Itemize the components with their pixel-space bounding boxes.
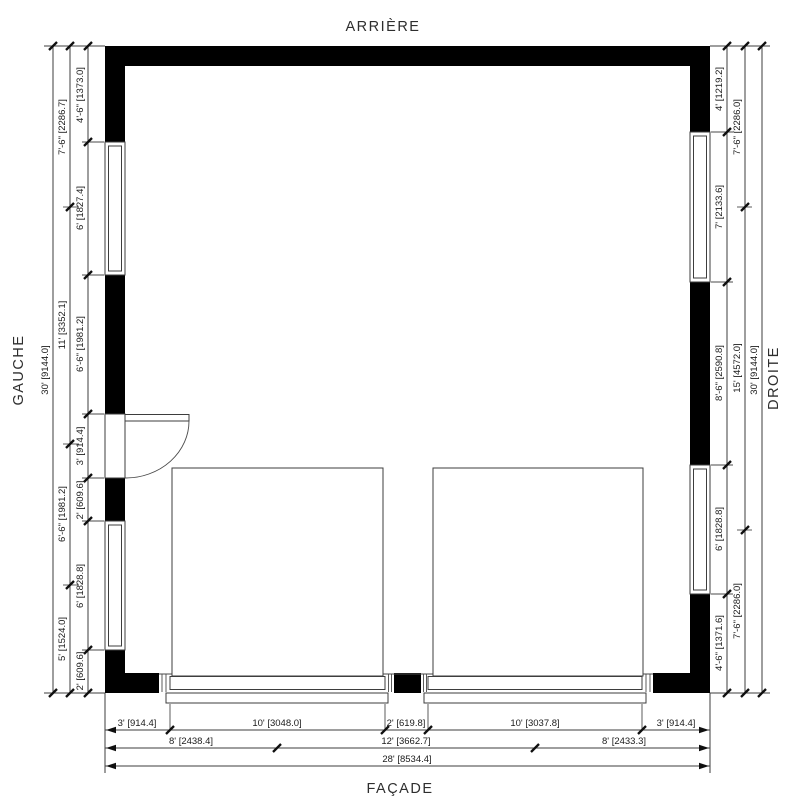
dim-label: 10' [3037.8] [510, 718, 559, 729]
dim-label: 4'-6" [1373.0] [75, 67, 86, 123]
garage-door-right-panel [428, 677, 642, 690]
dim-label: 15' [4572.0] [732, 343, 743, 392]
dim-label: 10' [3048.0] [252, 718, 301, 729]
dim-label-right-overall: 30' [9144.0] [749, 345, 760, 394]
dim-label-left-overall: 30' [9144.0] [40, 345, 51, 394]
door-opening [105, 414, 125, 478]
garage-door-right-sill [424, 693, 646, 703]
window-frame [109, 146, 122, 271]
garage-bay-right [433, 468, 643, 676]
dim-label: 8' [2438.4] [169, 736, 213, 747]
dim-labels-right-middle: 7'-6" [2286.0] 15' [4572.0] 7'-6" [2286.… [732, 99, 743, 639]
dim-label: 7' [2133.6] [714, 185, 725, 229]
dim-label: 11' [3352.1] [57, 301, 68, 350]
dim-label: 8' [2433.3] [602, 736, 646, 747]
garage-front-openings [159, 673, 653, 703]
floor-plan-canvas: 4'-6" [1373.0] 6' [1827.4] 6'-6" [1981.2… [0, 0, 800, 800]
dim-labels-left-inner: 4'-6" [1373.0] 6' [1827.4] 6'-6" [1981.2… [75, 67, 86, 690]
dim-label: 4'-6" [1371.6] [714, 615, 725, 671]
dim-labels-right-inner: 4' [1219.2] 7' [2133.6] 8'-6" [2590.8] 6… [714, 67, 725, 671]
dim-labels-left-middle: 7'-6" [2286.7] 11' [3352.1] 6'-6" [1981.… [57, 99, 68, 661]
window-frame [694, 469, 707, 590]
dim-label: 2' [619.8] [387, 718, 426, 729]
dim-label: 2' [609.6] [75, 481, 86, 520]
dim-label: 6' [1828.8] [75, 564, 86, 608]
dim-label: 3' [914.4] [75, 427, 86, 466]
dim-label: 6'-6" [1981.2] [57, 486, 68, 542]
garage-bay-left [172, 468, 383, 676]
garage-door-left-panel [170, 677, 385, 690]
dim-label: 6' [1827.4] [75, 186, 86, 230]
dim-label: 6'-6" [1981.2] [75, 316, 86, 372]
center-pier [394, 673, 421, 693]
label-front: FAÇADE [366, 781, 433, 797]
label-left-side: GAUCHE [11, 334, 27, 405]
floor-plan-page: 4'-6" [1373.0] 6' [1827.4] 6'-6" [1981.2… [0, 0, 800, 800]
window-left-upper [105, 142, 125, 275]
label-right-side: DROITE [766, 346, 782, 410]
dim-label: 7'-6" [2286.0] [732, 99, 743, 155]
window-right-upper [690, 132, 710, 282]
wall-rear [105, 46, 710, 66]
dim-label: 3' [914.4] [657, 718, 696, 729]
dim-label: 12' [3662.7] [381, 736, 430, 747]
dim-label: 2' [609.6] [75, 652, 86, 691]
dim-labels-bottom-middle: 8' [2438.4] 12' [3662.7] 8' [2433.3] [169, 736, 646, 747]
door-leaf [125, 415, 189, 422]
label-rear: ARRIÈRE [346, 18, 421, 35]
dim-label: 8'-6" [2590.8] [714, 345, 725, 401]
dim-label: 6' [1828.8] [714, 507, 725, 551]
garage-door-left-sill [166, 693, 388, 703]
dim-label: 5' [1524.0] [57, 617, 68, 661]
dim-label: 7'-6" [2286.7] [57, 99, 68, 155]
dim-labels-bottom-inner: 3' [914.4] 10' [3048.0] 2' [619.8] 10' [… [118, 718, 696, 729]
window-frame [109, 525, 122, 646]
dim-label: 7'-6" [2286.0] [732, 583, 743, 639]
dim-label: 3' [914.4] [118, 718, 157, 729]
garage-bays [172, 468, 643, 676]
window-left-lower [105, 521, 125, 650]
dim-label-bottom-overall: 28' [8534.4] [382, 754, 431, 765]
window-right-lower [690, 465, 710, 594]
window-frame [694, 136, 707, 278]
dim-label: 4' [1219.2] [714, 67, 725, 111]
